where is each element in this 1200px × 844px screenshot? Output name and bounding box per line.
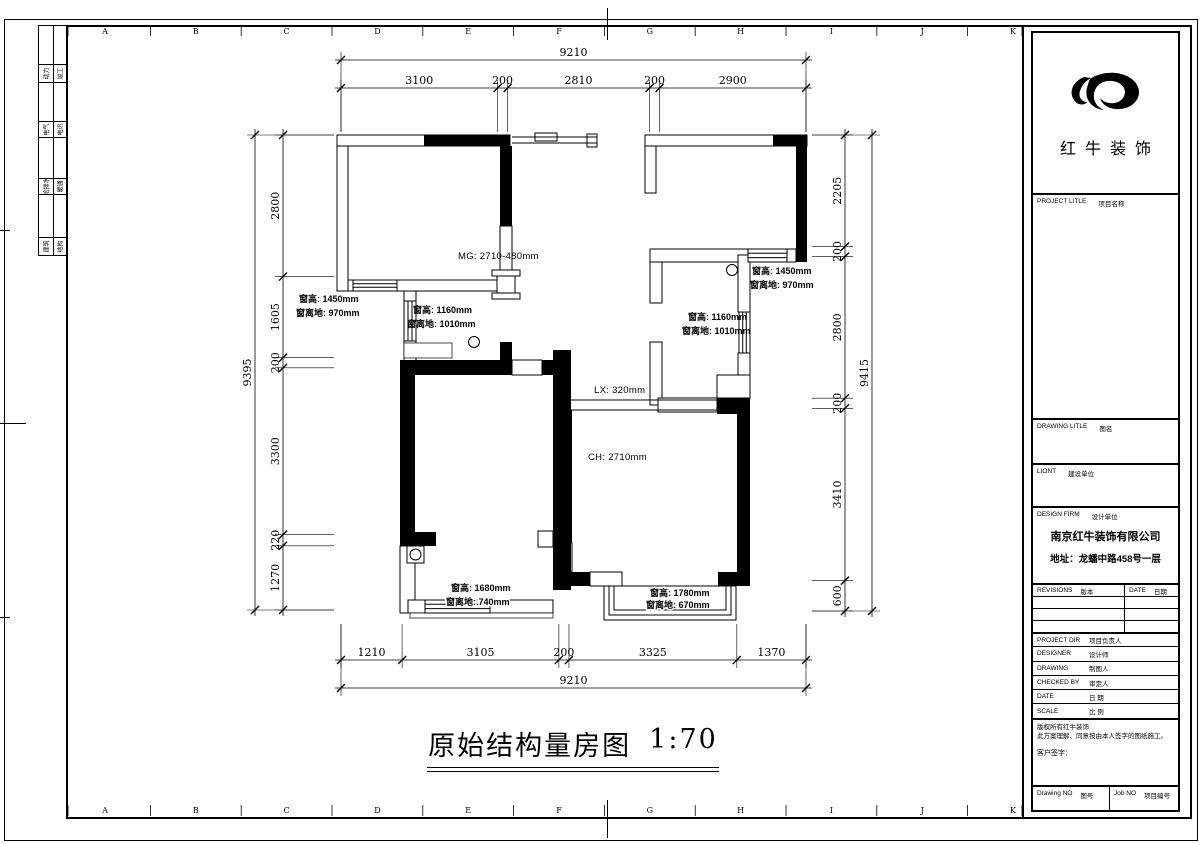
svg-text:H: H — [737, 27, 744, 36]
window-note: 窗离地: 1010mm — [407, 318, 476, 329]
titleblock-revisions-table: REVISIONS版本 DATE日期 — [1033, 583, 1178, 632]
date-row: DATE日 期 — [1033, 689, 1178, 703]
copyright-line2: 此方案理解、同意按由本人签字的图纸施工。 — [1037, 733, 1174, 742]
svg-text:2810: 2810 — [565, 74, 593, 87]
title-underline — [427, 767, 719, 772]
date-header: DATE日期 — [1125, 585, 1178, 596]
svg-text:3300: 3300 — [269, 437, 282, 465]
floor-plan-walls — [337, 133, 807, 620]
svg-text:D: D — [374, 27, 380, 36]
revision-empty-cell — [1033, 597, 1125, 608]
revision-empty-cell — [1125, 597, 1178, 608]
svg-text:200: 200 — [269, 352, 282, 373]
revision-empty-cell — [1125, 609, 1178, 620]
drain-symbol-icon — [410, 549, 421, 560]
titleblock-project-section: PROJECT LITLE 项目名称 — [1033, 195, 1178, 418]
titleblock-number-row: Drawing NO图号 Job NO项目编号 — [1033, 785, 1178, 810]
titleblock-personnel-rows: PROJECT DIR项目负责人 DESIGNER设计师 DRAWING制图人 … — [1033, 632, 1178, 718]
window-note: 窗高: 1450mm — [299, 293, 359, 304]
svg-text:600: 600 — [831, 585, 844, 606]
window-note: 窗高: 1680mm — [451, 582, 511, 593]
svg-text:200: 200 — [831, 393, 844, 414]
drawing-title: 原始结构量房图 1:70 — [427, 724, 719, 772]
copyright-line1: 版权所有红牛装饰 — [1037, 724, 1174, 733]
scale-row: SCALE比 例 — [1033, 703, 1178, 717]
svg-text:B: B — [193, 27, 199, 36]
designfirm-label-en: DESIGN FIRM — [1037, 511, 1080, 521]
svg-text:E: E — [465, 806, 471, 815]
drawing-scale: 1:70 — [649, 724, 718, 763]
firm-address: 地址：龙蟠中路458号一层 — [1033, 551, 1178, 565]
project-label-cn: 项目名称 — [1098, 198, 1124, 208]
designer-row: DESIGNER设计师 — [1033, 646, 1178, 660]
svg-text:F: F — [556, 27, 562, 36]
svg-text:I: I — [830, 27, 833, 36]
window-note: 窗离地: 970mm — [296, 307, 360, 318]
floor-plan-svg: MG: 2710-480mm LX: 320mm CH: 2710mm 窗高: … — [0, 0, 1200, 844]
revision-empty-cell — [1033, 621, 1125, 632]
svg-text:K: K — [1010, 806, 1017, 815]
svg-text:J: J — [920, 27, 924, 36]
drawing-no-cell: Drawing NO图号 — [1033, 787, 1110, 810]
svg-text:C: C — [284, 806, 290, 815]
svg-text:F: F — [556, 806, 562, 815]
checked-by-row: CHECKED BY审定人 — [1033, 675, 1178, 689]
svg-text:A: A — [101, 27, 108, 36]
svg-text:H: H — [737, 806, 744, 815]
svg-text:A: A — [101, 806, 108, 815]
company-name-logo-text: 红牛装饰 — [1051, 135, 1160, 159]
designfirm-label-cn: 设计单位 — [1092, 511, 1118, 521]
firm-name: 南京红牛装饰有限公司 — [1033, 528, 1178, 544]
window-note: 窗离地: 1010mm — [682, 325, 751, 336]
bull-logo-icon — [1054, 67, 1158, 129]
svg-text:9210: 9210 — [560, 46, 588, 59]
revision-empty-cell — [1033, 609, 1125, 620]
svg-text:9415: 9415 — [858, 359, 871, 387]
project-label-en: PROJECT LITLE — [1037, 198, 1086, 208]
svg-text:G: G — [647, 806, 653, 815]
border-rulers: AABBCCDDEEFFGGHHIIJJKK — [68, 26, 1022, 816]
titleblock-client-section: LIONT 建设单位 — [1033, 463, 1178, 506]
window-note: 窗离地: 970mm — [750, 279, 814, 290]
svg-text:2800: 2800 — [831, 313, 844, 341]
beam-note: LX: 320mm — [594, 385, 645, 396]
company-logo: 红牛装饰 — [1033, 33, 1178, 195]
drawing-title-text: 原始结构量房图 — [428, 724, 631, 763]
svg-text:J: J — [920, 806, 924, 815]
client-label-en: LIONT — [1037, 468, 1056, 478]
svg-text:2900: 2900 — [719, 74, 747, 87]
svg-text:3410: 3410 — [831, 480, 844, 508]
ceiling-height-note: MG: 2710-480mm — [458, 251, 539, 262]
svg-text:220: 220 — [269, 530, 282, 551]
svg-text:200: 200 — [831, 241, 844, 262]
project-dir-row: PROJECT DIR项目负责人 — [1033, 632, 1178, 646]
window-note: 窗高: 1160mm — [688, 311, 747, 322]
svg-text:3105: 3105 — [466, 646, 494, 659]
drawing-label-cn: 图名 — [1099, 423, 1112, 433]
svg-text:E: E — [465, 27, 471, 36]
drawing-sheet: 动力 竣工 电气 电讯 给排水 暖通 建筑 结构 — [0, 0, 1200, 844]
copyright-note: 版权所有红牛装饰 此方案理解、同意按由本人签字的图纸施工。 客户签字： — [1033, 718, 1178, 785]
ceiling-fixture-icon — [727, 265, 738, 276]
svg-text:C: C — [284, 27, 290, 36]
title-block: 红牛装饰 PROJECT LITLE 项目名称 DRAWING LITLE 图名… — [1031, 31, 1180, 812]
svg-text:3325: 3325 — [639, 646, 667, 659]
svg-text:1270: 1270 — [269, 564, 282, 592]
window-note: 窗离地: 740mm — [446, 596, 510, 607]
svg-text:1370: 1370 — [757, 646, 785, 659]
window-note: 窗高: 1450mm — [752, 265, 812, 276]
svg-text:1605: 1605 — [269, 303, 282, 331]
client-signature-label: 客户签字： — [1037, 749, 1174, 758]
job-no-cell: Job NO项目编号 — [1110, 787, 1178, 810]
titleblock-drawingname-section: DRAWING LITLE 图名 — [1033, 418, 1178, 463]
svg-text:200: 200 — [553, 646, 574, 659]
ceiling-height-note: CH: 2710mm — [588, 452, 647, 463]
svg-text:9210: 9210 — [560, 674, 588, 687]
svg-text:D: D — [374, 806, 380, 815]
svg-text:2800: 2800 — [269, 192, 282, 220]
svg-text:B: B — [193, 806, 199, 815]
revisions-header: REVISIONS版本 — [1033, 585, 1125, 596]
svg-text:9395: 9395 — [241, 359, 254, 387]
svg-text:G: G — [647, 27, 653, 36]
svg-text:200: 200 — [644, 74, 665, 87]
svg-text:1210: 1210 — [358, 646, 386, 659]
drawing-by-row: DRAWING制图人 — [1033, 661, 1178, 675]
svg-text:200: 200 — [492, 74, 513, 87]
svg-text:I: I — [830, 806, 833, 815]
window-note: 窗离地: 670mm — [646, 599, 710, 610]
ceiling-fixture-icon — [469, 337, 480, 348]
window-note: 窗高: 1160mm — [413, 304, 472, 315]
revision-empty-cell — [1125, 621, 1178, 632]
svg-text:K: K — [1010, 27, 1017, 36]
svg-text:2205: 2205 — [831, 177, 844, 205]
client-label-cn: 建设单位 — [1068, 468, 1094, 478]
drawing-label-en: DRAWING LITLE — [1037, 423, 1087, 433]
svg-text:3100: 3100 — [405, 74, 433, 87]
window-note: 窗高: 1780mm — [650, 587, 710, 598]
titleblock-designfirm-section: DESIGN FIRM 设计单位 南京红牛装饰有限公司 地址：龙蟠中路458号一… — [1033, 506, 1178, 583]
